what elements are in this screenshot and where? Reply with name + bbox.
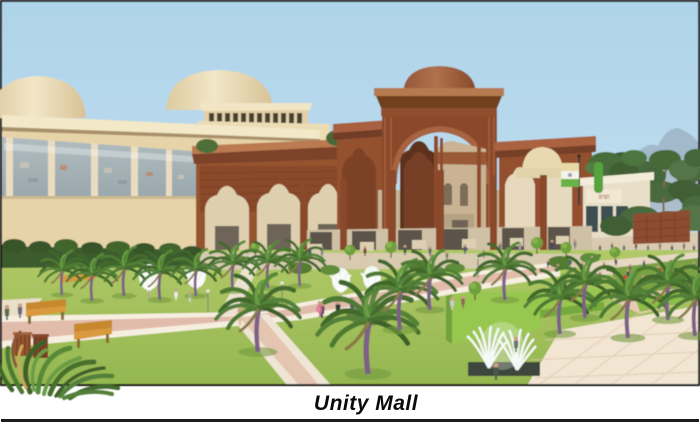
svg-text:রাস্তা: রাস্তা <box>597 195 609 201</box>
